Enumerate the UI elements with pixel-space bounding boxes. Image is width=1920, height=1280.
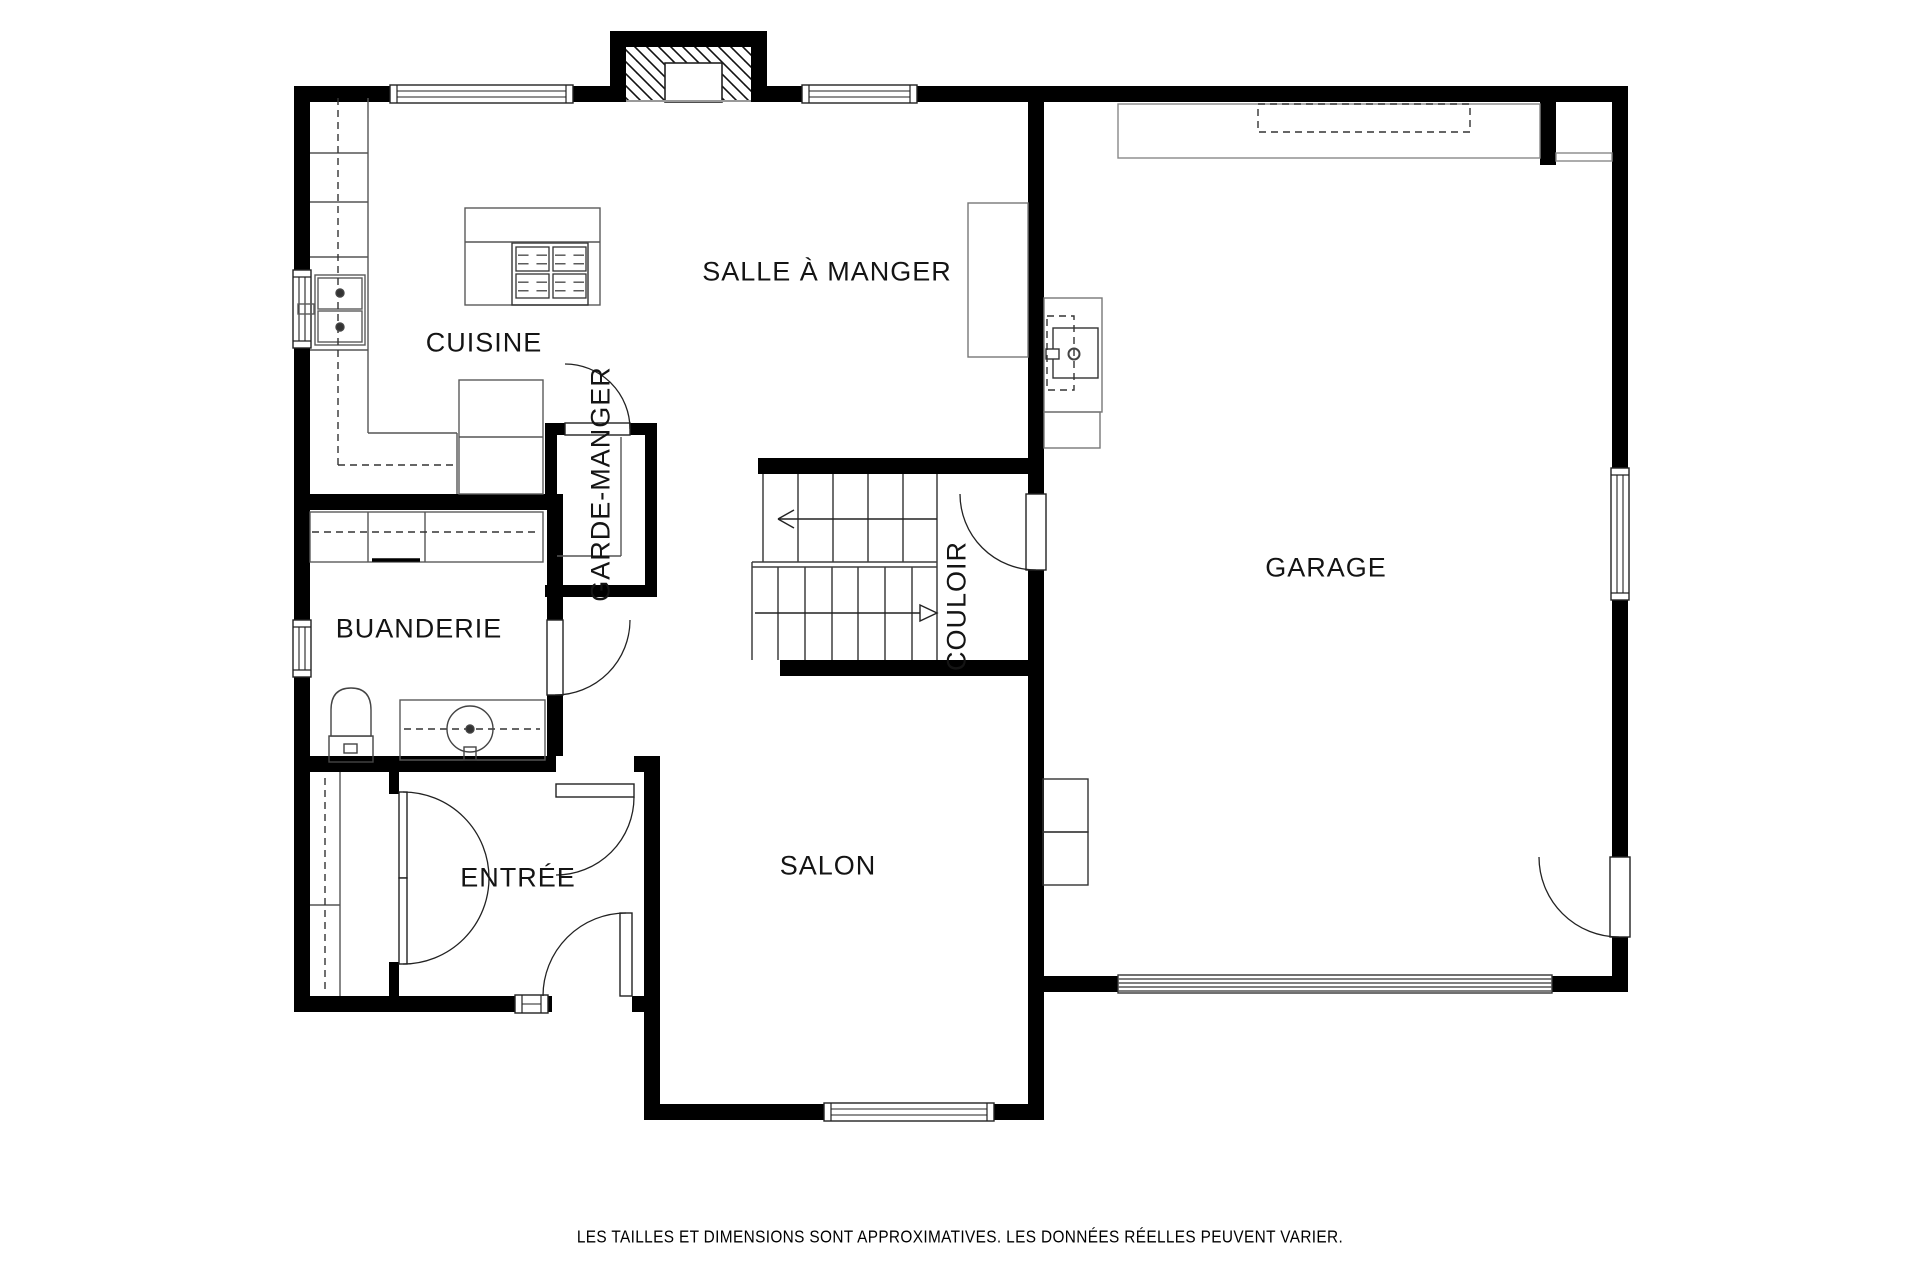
window-buanderie-left <box>293 620 311 677</box>
wall-stairs-bottom <box>780 660 1028 676</box>
faucet-dot <box>336 289 344 297</box>
door-entree-hall-opening <box>556 756 634 772</box>
garage-nook-shelf <box>1556 153 1612 161</box>
stairs-up-arrowhead <box>778 519 794 528</box>
room-label-buanderie: BUANDERIE <box>336 614 503 645</box>
toilet-bowl <box>331 688 371 736</box>
door-garage-side-swing-arc <box>1539 857 1619 937</box>
room-label-cuisine: CUISINE <box>426 328 543 359</box>
door-buanderie-swing-arc <box>555 620 630 695</box>
wall-garage-divider <box>1028 102 1044 1104</box>
stove-burner <box>553 247 586 271</box>
room-label-salle-a-manger: SALLE À MANGER <box>702 257 952 288</box>
stove-burner <box>553 274 586 298</box>
door-entree-hall-leaf <box>556 784 634 797</box>
faucet-dot <box>336 323 344 331</box>
garage-dashed-zone <box>1258 104 1470 132</box>
room-label-garde-manger: GARDE-MANGER <box>586 366 617 602</box>
wall-stairs-top <box>758 458 1028 474</box>
kitchen-sink-cabinet <box>315 275 365 345</box>
door-buanderie-leaf <box>547 620 563 695</box>
wall-closet-stub-bottom <box>389 962 399 1012</box>
wall-left <box>294 86 310 1012</box>
disclaimer-text: LES TAILLES ET DIMENSIONS SONT APPROXIMA… <box>577 1227 1343 1248</box>
floor-plan-canvas: CUISINE SALLE À MANGER GARDE-MANGER BUAN… <box>0 0 1920 1280</box>
wall-entree-right <box>644 758 660 1120</box>
garage-utility-base <box>1044 412 1100 448</box>
stairs-down-arrowhead <box>920 605 937 621</box>
window-garage-right <box>1611 468 1629 600</box>
door-entree-front-opening <box>552 996 632 1012</box>
door-entree-front-swing-arc <box>543 913 626 996</box>
room-label-entree: ENTRÉE <box>460 863 576 894</box>
door-couloir-garage-leaf <box>1026 494 1046 570</box>
garage-utility-handle <box>1046 349 1059 359</box>
door-garage-side-leaf <box>1610 857 1630 937</box>
garage-workbench <box>1118 104 1540 158</box>
room-label-salon: SALON <box>780 851 877 882</box>
closet-double-doors-leaf <box>399 792 407 878</box>
wall-cuisine-buanderie <box>294 494 563 510</box>
stove-burner <box>516 274 549 298</box>
garage-shelf-box <box>1043 832 1088 885</box>
window-salon-bottom <box>824 1103 994 1121</box>
stove-burner <box>516 247 549 271</box>
garage-utility-sink <box>1053 328 1098 378</box>
faucet-dot <box>466 725 474 733</box>
window-cuisine-top <box>390 85 573 103</box>
wall-gm-right <box>645 423 657 597</box>
closet-double-doors-leaf <box>399 878 407 964</box>
wall-gm-left <box>545 423 557 510</box>
dining-sideboard <box>968 203 1028 357</box>
room-label-couloir: COULOIR <box>942 541 973 671</box>
laundry-counter <box>310 512 543 562</box>
garage-shelf-box <box>1043 779 1088 832</box>
room-label-garage: GARAGE <box>1265 553 1387 584</box>
window-cuisine-left <box>293 270 311 348</box>
wall-garage-nook-stub <box>1540 102 1556 165</box>
toilet-flush <box>344 744 357 753</box>
wall-closet-stub-top <box>389 756 399 794</box>
door-entree-front-leaf <box>620 913 632 996</box>
stairs-up-arrowhead <box>778 510 794 519</box>
window-salle-top <box>802 85 917 103</box>
chimney-flue <box>665 63 722 102</box>
